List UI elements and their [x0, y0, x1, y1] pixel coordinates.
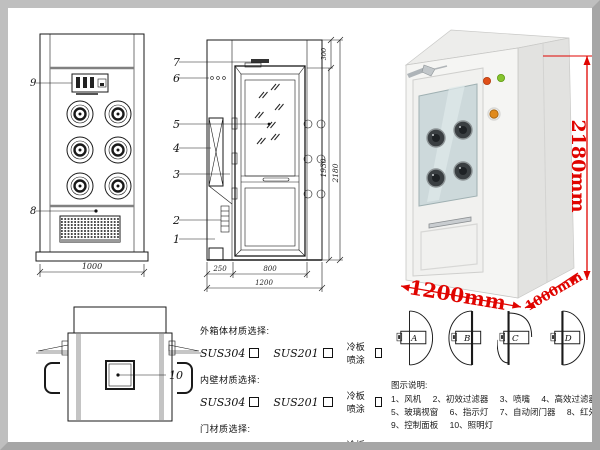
material-option-label: SUS201: [273, 347, 318, 360]
material-checkbox[interactable]: [323, 397, 333, 407]
dim-2180: 2180: [331, 163, 340, 183]
door-glass-drawing: [245, 80, 295, 176]
material-group-title: 门材质选择:: [200, 422, 390, 435]
dim-1000: 1000: [82, 262, 102, 271]
door-config-a[interactable]: A: [396, 306, 435, 370]
dim-800: 800: [263, 265, 277, 273]
material-checkbox[interactable]: [249, 348, 259, 358]
legend-item: 3、喷嘴: [500, 394, 530, 404]
material-checkbox[interactable]: [375, 397, 382, 407]
callout-4: 4: [172, 142, 180, 155]
top-view-drawing: 10: [36, 301, 201, 431]
nozzles-front: [67, 101, 131, 199]
material-checkbox[interactable]: [375, 446, 382, 450]
material-option-label: 冷板喷涂: [347, 340, 371, 366]
legend-item: 8、红外线感应器: [567, 407, 600, 417]
material-group-title: 内壁材质选择:: [200, 373, 390, 386]
legend-title: 图示说明:: [391, 379, 599, 391]
control-panel-drawing: [72, 74, 108, 94]
legend-item: 10、照明灯: [450, 420, 493, 430]
top-view-left-handle: [45, 363, 60, 393]
photo-red-light: [483, 77, 490, 84]
door-config-label: D: [563, 334, 571, 344]
door-config-b[interactable]: B: [447, 306, 486, 370]
door-config-d[interactable]: D: [548, 306, 587, 370]
material-option-label: SUS304: [200, 445, 245, 450]
material-group-title: 外箱体材质选择:: [200, 324, 390, 337]
callout-10: 10: [169, 369, 183, 382]
material-checkbox[interactable]: [323, 446, 333, 450]
dim-300: 300: [320, 48, 328, 60]
photo-orange-button[interactable]: [490, 110, 498, 118]
callout-8: 8: [30, 206, 36, 217]
material-checkbox[interactable]: [249, 446, 259, 450]
door-config-c[interactable]: C: [497, 306, 536, 370]
material-option-label: SUS201: [273, 396, 318, 409]
door-config-label: C: [512, 334, 519, 344]
callout-5: 5: [173, 118, 180, 131]
side-view-drawing: 7 6 5 4 3 2 1: [171, 28, 351, 298]
photo-dim-height-label: 2180mm: [567, 119, 589, 212]
door-config-options: A B C D: [396, 306, 586, 370]
legend-item: 9、控制面板: [391, 420, 438, 430]
material-selection: 外箱体材质选择: SUS304 SUS201 冷板喷涂 内壁材质选择: SUS3…: [200, 324, 390, 450]
door-closer-drawing: [251, 59, 269, 63]
callout-3: 3: [173, 168, 180, 181]
material-checkbox[interactable]: [249, 397, 259, 407]
material-checkbox[interactable]: [375, 348, 382, 358]
legend-item: 4、高效过滤器: [541, 394, 597, 404]
photo-green-light: [497, 74, 504, 81]
legend-item: 5、玻璃视窗: [391, 407, 438, 417]
callout-7: 7: [173, 56, 180, 69]
callout-9: 9: [30, 78, 37, 89]
door-config-label: B: [463, 334, 470, 344]
callout-2: 2: [172, 214, 180, 227]
dim-1930: 1930: [319, 158, 328, 177]
legend-item: 2、初效过滤器: [433, 394, 489, 404]
air-shower-spec-sheet: 9 8 100: [0, 0, 600, 450]
door-handle-drawing: [263, 178, 289, 181]
front-view-drawing: 9 8 100: [28, 28, 158, 283]
material-option-label: 冷板喷涂: [347, 389, 371, 415]
legend-item: 7、自动闭门器: [500, 407, 556, 417]
dim-250: 250: [212, 265, 227, 273]
legend-item: 6、指示灯: [450, 407, 489, 417]
material-option-label: SUS201: [273, 445, 318, 450]
material-checkbox[interactable]: [323, 348, 333, 358]
legend-item: 1、风机: [391, 394, 421, 404]
legend: 图示说明: 1、风机 2、初效过滤器 3、喷嘴 4、高效过滤器 5、玻璃视窗 6…: [391, 379, 599, 432]
material-option-label: 冷板喷涂: [347, 438, 371, 450]
product-photo: 2180mm 1200mm 1000mm: [391, 18, 600, 313]
material-option-label: SUS304: [200, 347, 245, 360]
callout-6: 6: [173, 72, 180, 85]
door-config-label: A: [410, 334, 417, 344]
dim-1200: 1200: [255, 279, 273, 287]
callout-1: 1: [173, 233, 180, 246]
material-option-label: SUS304: [200, 396, 245, 409]
grille-drawing: [60, 216, 120, 242]
